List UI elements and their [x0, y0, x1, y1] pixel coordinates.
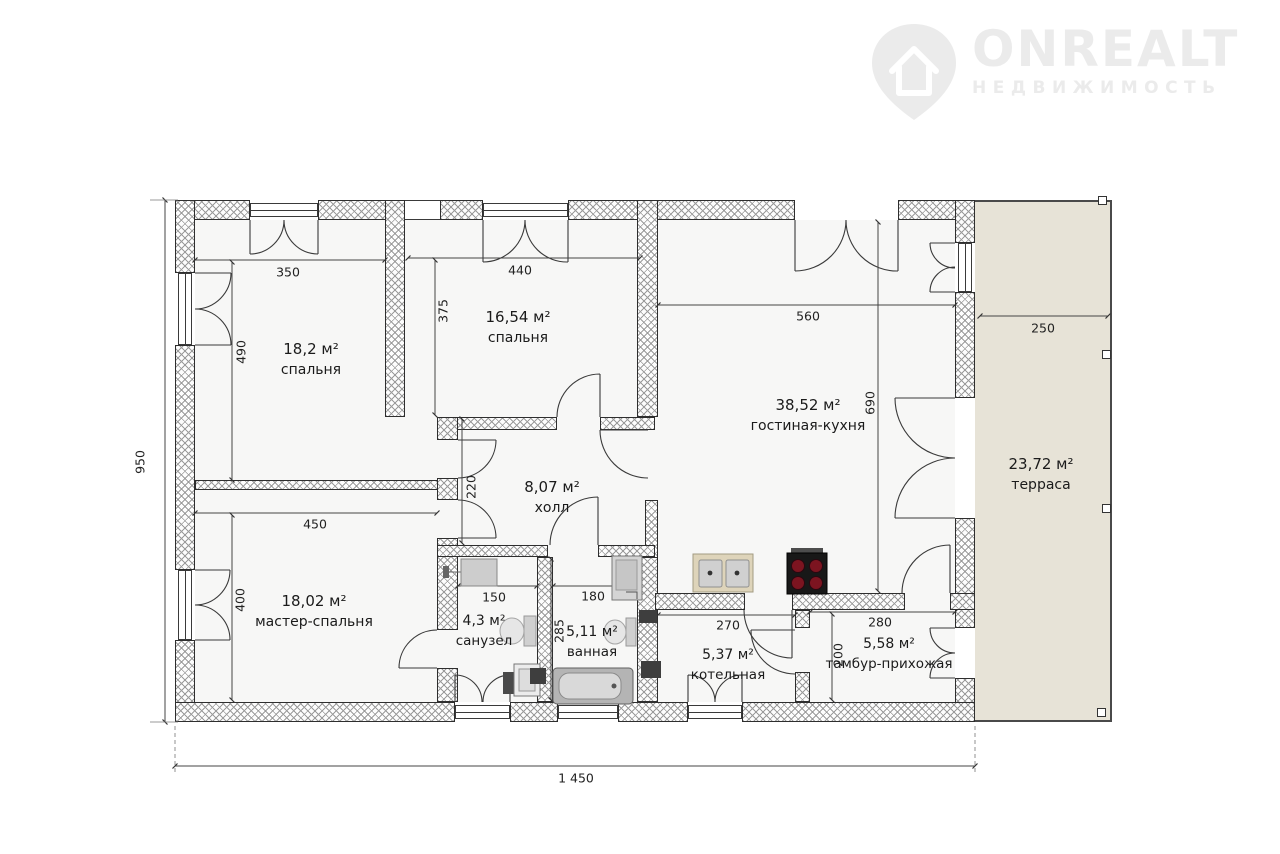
room-name: котельная — [691, 666, 765, 685]
window-living-right — [958, 243, 972, 292]
wall-segment — [795, 610, 810, 628]
dim-bedroom2-width: 440 — [508, 263, 532, 278]
room-area: 16,54 м² — [485, 306, 550, 329]
window-bedroom1-left — [178, 273, 192, 345]
dim-vestibule-width: 280 — [868, 615, 892, 630]
window-boiler-bottom — [688, 705, 742, 719]
room-label-hall: 8,07 м² холл — [524, 476, 580, 518]
wall-segment — [437, 668, 458, 702]
house-pin-icon — [868, 22, 960, 122]
wall-segment — [955, 200, 975, 243]
wall-segment — [637, 200, 658, 417]
wall-segment — [448, 417, 557, 430]
room-name: санузел — [456, 632, 513, 651]
terrace-post — [1097, 708, 1106, 717]
room-label-terrace: 23,72 м² терраса — [1008, 453, 1073, 495]
room-label-living: 38,52 м² гостиная-кухня — [751, 394, 866, 436]
room-label-bedroom2: 16,54 м² спальня — [485, 306, 550, 348]
wall-segment — [510, 702, 558, 722]
wall-segment — [600, 417, 655, 430]
room-label-master: 18,02 м² мастер-спальня — [255, 590, 373, 632]
wall-segment — [792, 593, 905, 610]
wall-segment — [742, 702, 975, 722]
dim-bedroom1-height: 490 — [234, 340, 249, 364]
wall-segment — [598, 545, 655, 557]
dim-bath-height: 285 — [552, 619, 567, 643]
terrace-post — [1102, 504, 1111, 513]
wall-segment — [437, 478, 458, 500]
room-area: 5,37 м² — [691, 645, 765, 666]
dim-bedroom1-width: 350 — [276, 265, 300, 280]
logo-brand: ONREALT — [972, 22, 1239, 77]
room-label-bath: 5,11 м² ванная — [566, 622, 618, 662]
window-bedroom1-top — [250, 203, 318, 217]
dim-master-width: 450 — [303, 517, 327, 532]
wall-segment — [175, 702, 455, 722]
dim-master-height: 400 — [233, 588, 248, 612]
room-area: 5,11 м² — [566, 622, 618, 643]
room-name: терраса — [1008, 475, 1073, 495]
room-label-boiler: 5,37 м² котельная — [691, 645, 765, 685]
dim-bath-width: 180 — [581, 589, 605, 604]
wall-opening — [405, 200, 440, 220]
wall-segment — [655, 593, 745, 610]
room-name: холл — [524, 498, 580, 518]
room-area: 18,2 м² — [281, 338, 341, 361]
wall-segment — [568, 200, 795, 220]
window-bath-bottom — [558, 705, 618, 719]
room-name: мастер-спальня — [255, 612, 373, 632]
terrace-post — [1098, 196, 1107, 205]
wall-segment — [437, 545, 548, 557]
room-label-bedroom1: 18,2 м² спальня — [281, 338, 341, 380]
dim-terrace-width: 250 — [1031, 321, 1055, 336]
dim-hall-height: 220 — [464, 475, 479, 499]
dim-wc-width: 150 — [482, 590, 506, 605]
dim-boiler-width: 270 — [716, 618, 740, 633]
wall-master-top — [195, 480, 440, 490]
dim-living-height: 690 — [863, 391, 878, 415]
dim-bedroom2-height: 375 — [436, 299, 451, 323]
terrace-post — [1102, 350, 1111, 359]
wall-segment — [955, 292, 975, 398]
wall-segment — [795, 672, 810, 702]
room-area: 38,52 м² — [751, 394, 866, 417]
dim-overall-width: 1 450 — [558, 771, 594, 786]
wall-segment — [175, 345, 195, 570]
wall-bath-boiler-divider — [637, 557, 658, 702]
dim-living-width: 560 — [796, 309, 820, 324]
wall-segment — [950, 593, 975, 610]
wall-bedrooms-divider — [385, 200, 405, 417]
room-area: 4,3 м² — [456, 611, 513, 632]
logo-text: ONREALT НЕДВИЖИМОСТЬ — [972, 22, 1239, 98]
logo-tagline: НЕДВИЖИМОСТЬ — [972, 78, 1239, 98]
onrealt-logo: ONREALT НЕДВИЖИМОСТЬ — [868, 22, 1239, 122]
wall-segment — [437, 417, 458, 440]
wall-segment — [618, 702, 688, 722]
window-master-left — [178, 570, 192, 640]
room-area: 8,07 м² — [524, 476, 580, 499]
window-wc-bottom — [455, 705, 510, 719]
wall-segment — [955, 518, 975, 628]
room-area: 23,72 м² — [1008, 453, 1073, 476]
floor-plan-page: ONREALT НЕДВИЖИМОСТЬ — [0, 0, 1280, 854]
dim-vestibule-height: 200 — [831, 643, 846, 667]
room-name: ванная — [566, 643, 618, 662]
dim-overall-height: 950 — [133, 450, 148, 474]
wall-segment — [440, 200, 483, 220]
wall-segment — [175, 200, 195, 273]
room-name: спальня — [281, 360, 341, 380]
window-bedroom2-top — [483, 203, 568, 217]
room-name: гостиная-кухня — [751, 416, 866, 436]
room-area: 18,02 м² — [255, 590, 373, 613]
room-name: спальня — [485, 328, 550, 348]
room-label-wc: 4,3 м² санузел — [456, 611, 513, 651]
